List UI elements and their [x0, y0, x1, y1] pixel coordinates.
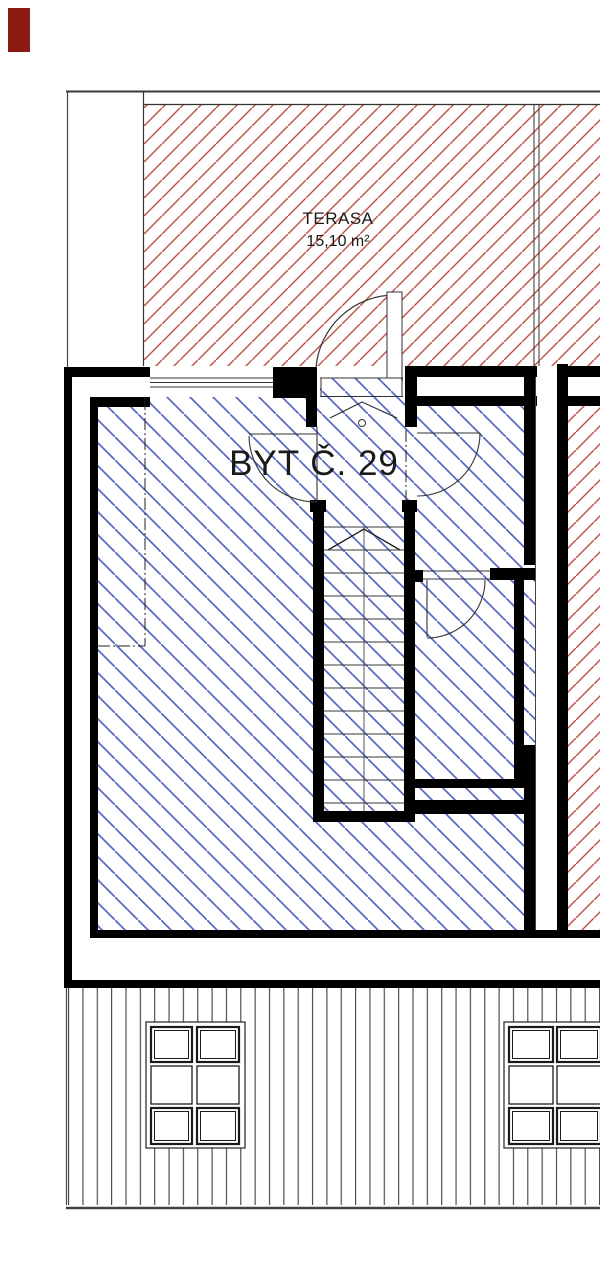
wall-pillar-right-leg [405, 377, 417, 427]
wall-pillar-left-leg [306, 398, 317, 427]
wall-neighbour-inner [568, 396, 600, 406]
wall-top-right-outer [405, 366, 537, 377]
room-wall-top [490, 568, 536, 580]
window-pane [509, 1066, 553, 1104]
wall-top-right-inner [417, 396, 537, 406]
wall-bottom-outer [64, 980, 600, 988]
roof-window-left [146, 1022, 245, 1148]
window-pane [197, 1066, 239, 1104]
room-wall-right [514, 568, 524, 788]
window-pane [509, 1108, 553, 1144]
window-pane [197, 1027, 239, 1062]
wall-segment-lower [412, 800, 536, 814]
window-pane [557, 1108, 600, 1144]
door-threshold-hatch [320, 378, 403, 397]
roof-window-right [504, 1022, 600, 1148]
wall-pillar-left [273, 367, 317, 398]
wall-left-outer [64, 367, 72, 987]
wall-party [557, 364, 568, 930]
wall-neighbour-outer [568, 366, 600, 377]
stair-wall-bottom [313, 811, 415, 822]
legend-marker-box [8, 8, 30, 52]
stair-wall-right [404, 505, 415, 822]
floor-plan-canvas: TERASA 15,10 m² [0, 0, 600, 1278]
terrace-hatch [143, 104, 600, 366]
floor-plan-page: TERASA 15,10 m² [0, 0, 600, 1278]
window-pane [557, 1027, 600, 1062]
window-pane [151, 1066, 192, 1104]
window-pane [197, 1108, 239, 1144]
terrace-door-leaf [387, 292, 402, 378]
terrace-area-label: 15,10 m² [306, 233, 370, 250]
neighbour-unit-hatch [568, 406, 600, 930]
wall-right-lower [524, 745, 536, 930]
wall-bottom-inner [90, 930, 600, 938]
wall-left-inner [90, 397, 98, 930]
stair-wall-left [313, 505, 324, 822]
room-wall-bottom [412, 779, 536, 788]
wall-top-left-inner [90, 397, 150, 407]
terrace-region: TERASA 15,10 m² [66, 91, 600, 367]
window-pane [557, 1066, 600, 1104]
room-wall-stub [405, 570, 423, 582]
wall-right-upper [524, 377, 536, 565]
window-pane [509, 1027, 553, 1062]
unit-label: BYT Č. 29 [229, 444, 399, 483]
terrace-label: TERASA [302, 209, 373, 228]
window-pane [151, 1108, 192, 1144]
window-pane [151, 1027, 192, 1062]
wall-top-left-outer [64, 367, 150, 377]
